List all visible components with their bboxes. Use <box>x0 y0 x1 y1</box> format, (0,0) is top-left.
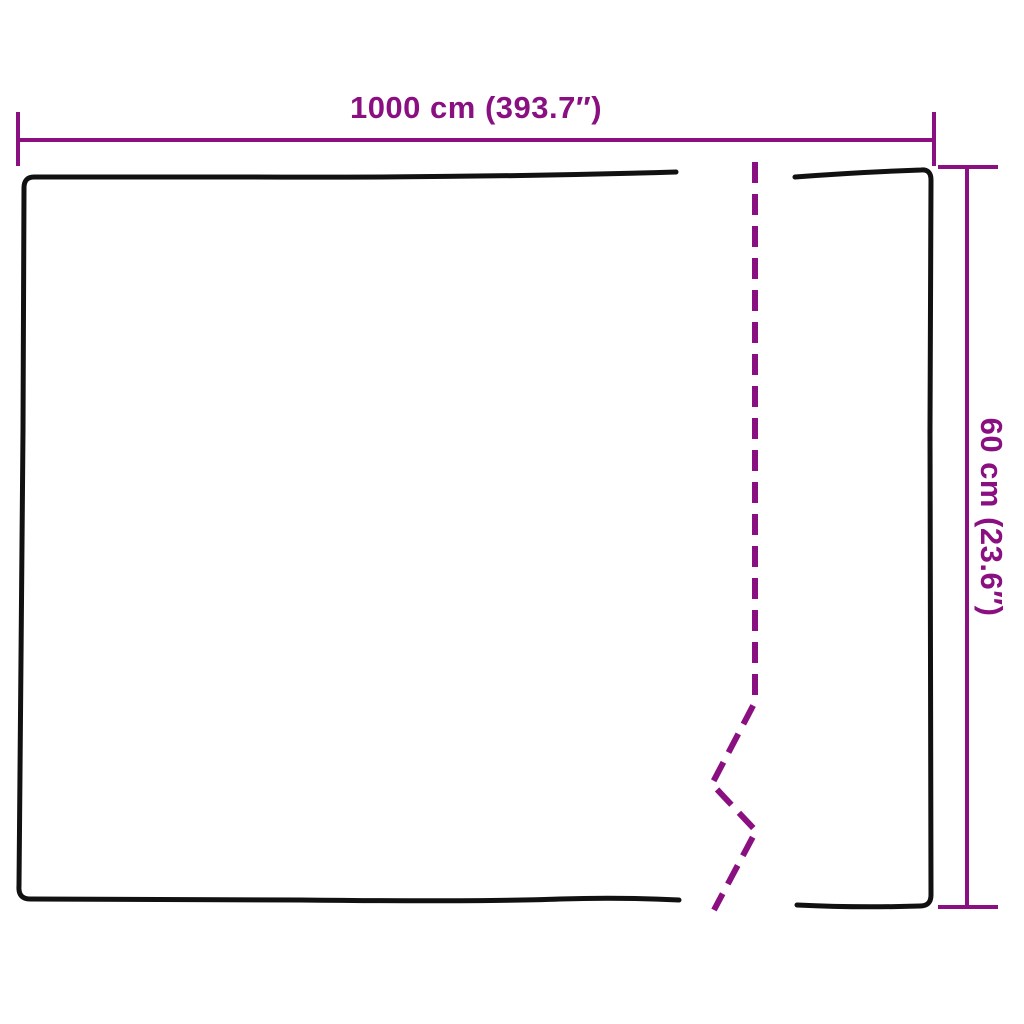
fold-line-dashed <box>712 162 756 910</box>
product-outline-right <box>795 170 931 907</box>
dimension-diagram: 1000 cm (393.7″) 60 cm (23.6″) <box>0 0 1024 1024</box>
width-dimension-label: 1000 cm (393.7″) <box>18 90 934 126</box>
diagram-canvas <box>0 0 1024 1024</box>
height-dimension-label: 60 cm (23.6″) <box>973 418 1009 617</box>
product-outline-left <box>19 172 679 901</box>
